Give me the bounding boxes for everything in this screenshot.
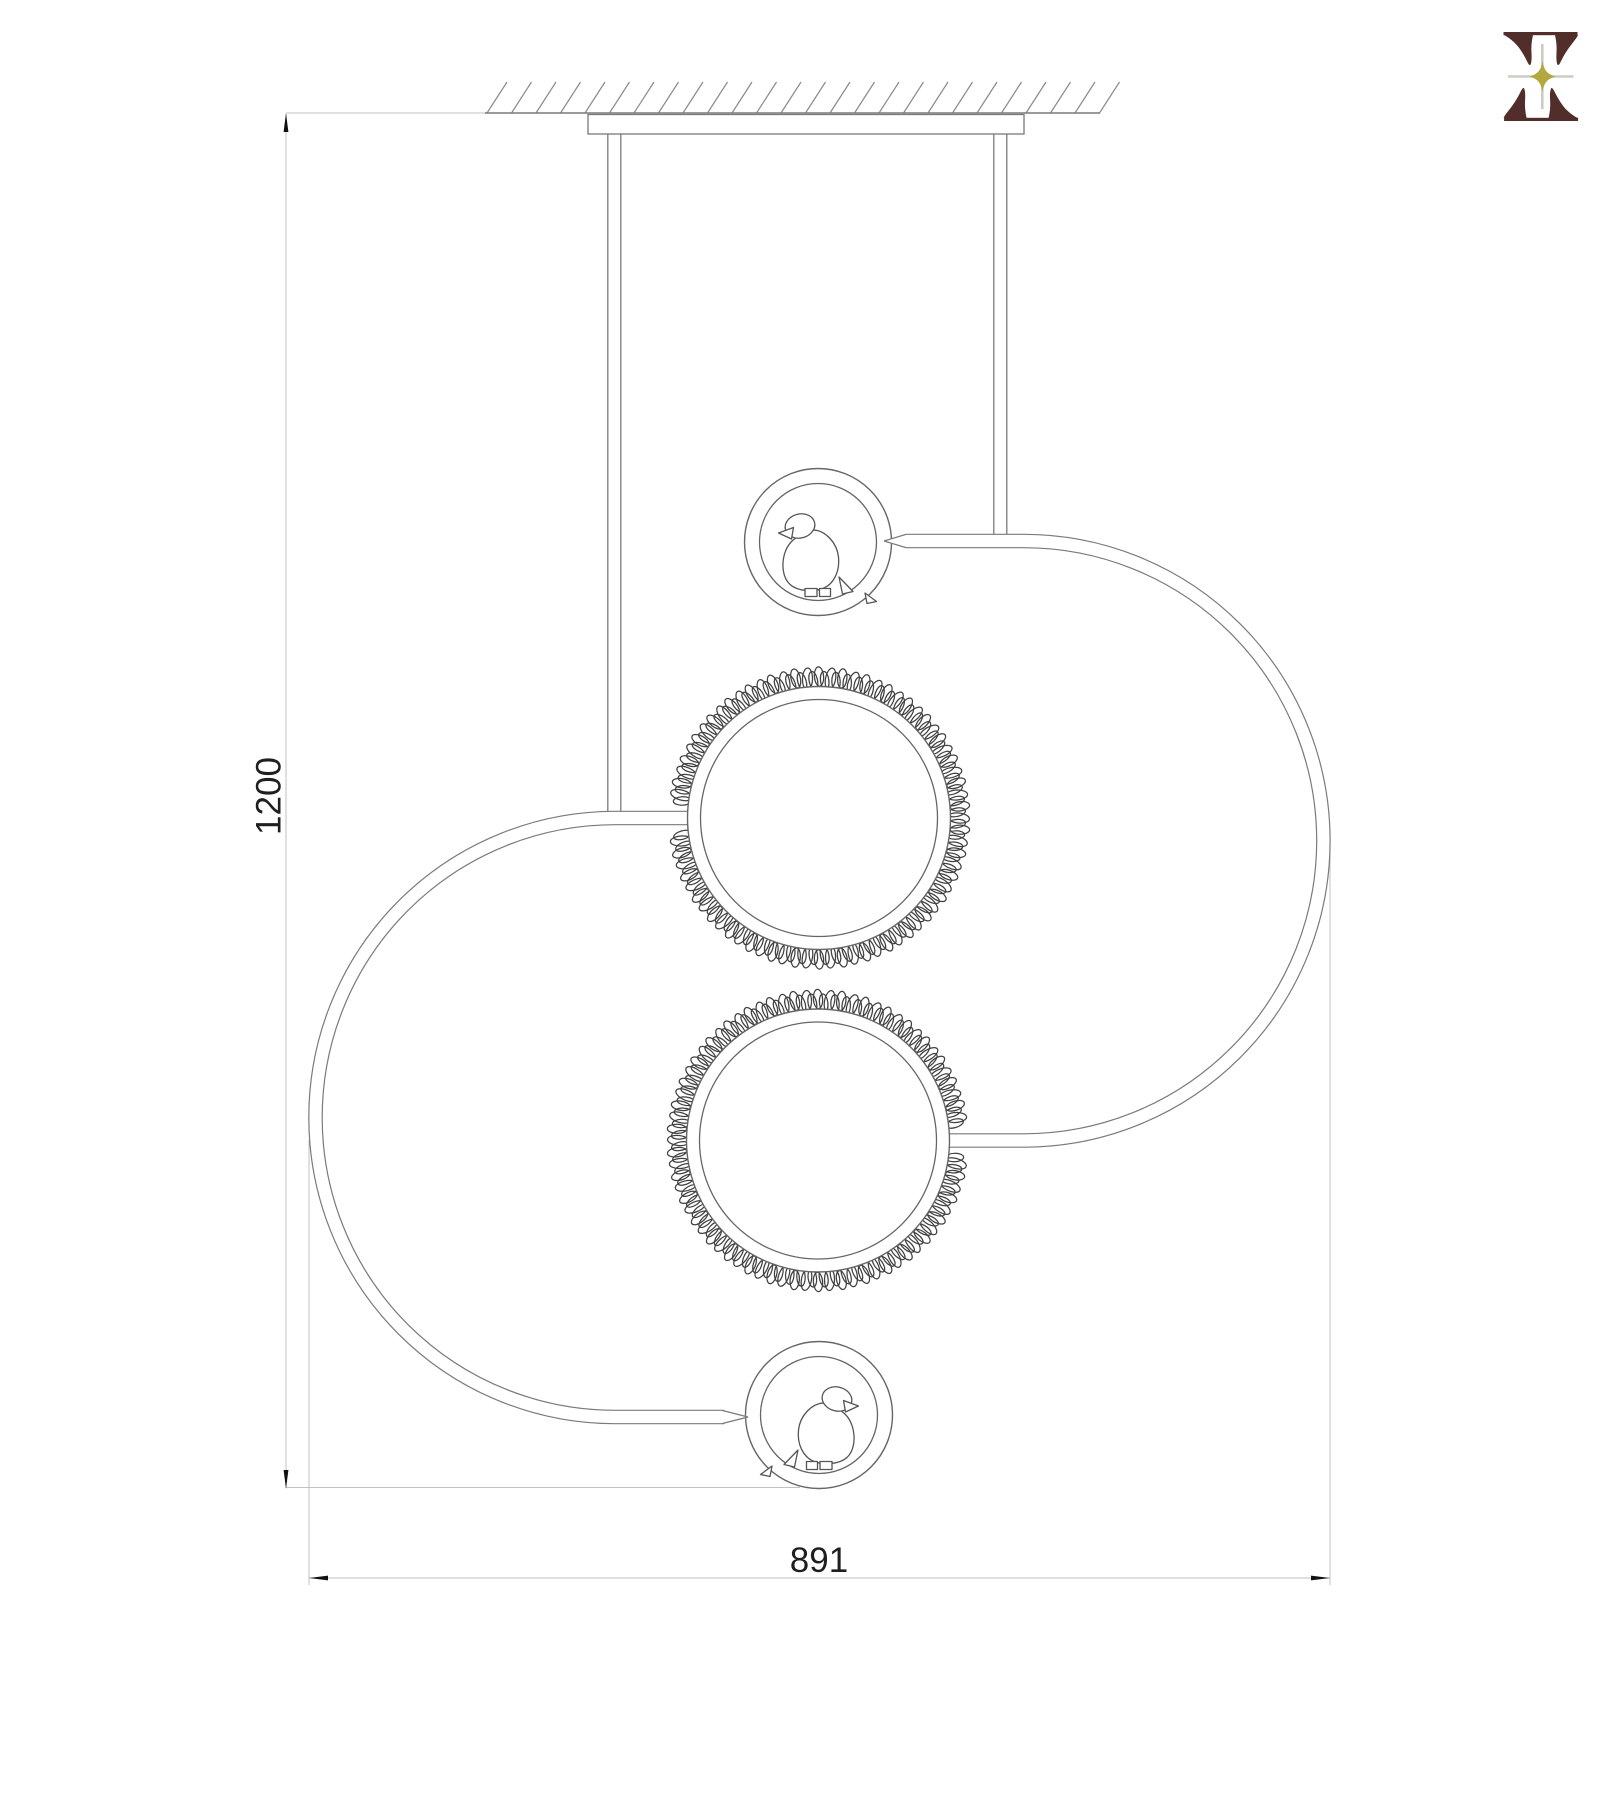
svg-text:891: 891: [790, 1541, 848, 1580]
svg-text:1200: 1200: [250, 757, 289, 835]
